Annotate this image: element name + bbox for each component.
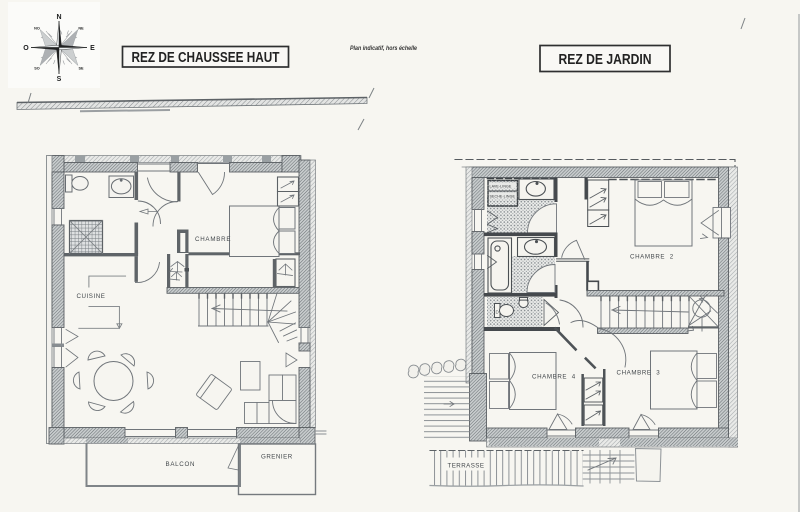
svg-text:N: N [56, 14, 61, 21]
svg-text:CHAMBRE 4: CHAMBRE 4 [532, 374, 576, 381]
svg-text:TERRASSE: TERRASSE [448, 463, 485, 470]
svg-text:O: O [23, 45, 29, 52]
svg-text:BALCON: BALCON [166, 461, 196, 468]
svg-text:REZ DE CHAUSSEE HAUT: REZ DE CHAUSSEE HAUT [132, 50, 280, 66]
svg-text:NO: NO [34, 27, 40, 31]
svg-text:GRENIER: GRENIER [261, 454, 293, 461]
svg-text:SO: SO [34, 67, 40, 71]
svg-text:CHAMBRE 2: CHAMBRE 2 [630, 254, 674, 261]
svg-text:CUISINE: CUISINE [77, 293, 106, 300]
svg-text:Plan indicatif, hors échelle: Plan indicatif, hors échelle [350, 45, 417, 52]
svg-text:S: S [57, 76, 62, 83]
svg-text:E: E [90, 45, 95, 52]
svg-text:SECHE-LINGE: SECHE-LINGE [490, 195, 516, 199]
svg-text:LAVE-LINGE: LAVE-LINGE [490, 185, 512, 189]
svg-text:CHAMBRE 3: CHAMBRE 3 [617, 370, 661, 377]
svg-text:REZ DE JARDIN: REZ DE JARDIN [559, 52, 652, 68]
svg-text:NE: NE [78, 27, 84, 31]
svg-text:SE: SE [78, 67, 84, 71]
svg-text:CHAMBRE: CHAMBRE [195, 236, 231, 243]
